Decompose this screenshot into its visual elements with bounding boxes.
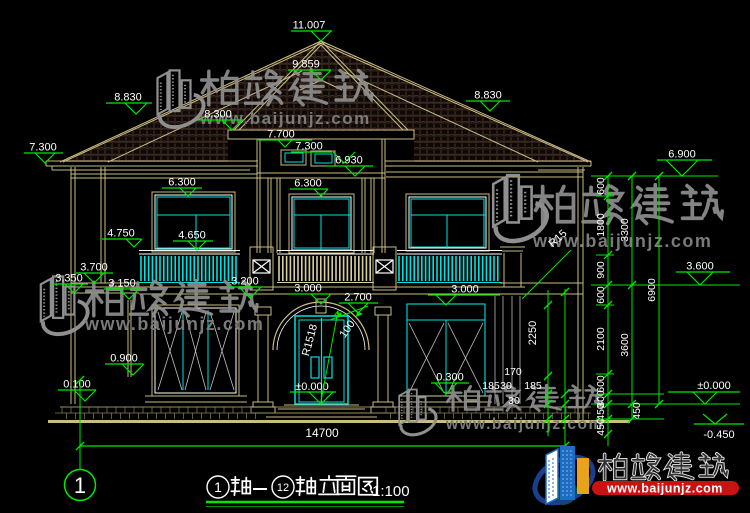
- svg-text:8.830: 8.830: [114, 92, 142, 104]
- svg-text:6.900: 6.900: [668, 149, 696, 161]
- svg-text:600: 600: [595, 177, 607, 195]
- svg-text:185: 185: [524, 380, 542, 392]
- svg-text:www.baijunjz.com: www.baijunjz.com: [84, 314, 264, 334]
- svg-text:1:100: 1:100: [372, 483, 410, 500]
- svg-text:3300: 3300: [619, 218, 631, 242]
- svg-text:14700: 14700: [305, 426, 339, 440]
- svg-text:7.300: 7.300: [29, 142, 57, 154]
- svg-text:0.900: 0.900: [110, 353, 138, 365]
- svg-text:3.200: 3.200: [231, 276, 259, 288]
- svg-text:3.600: 3.600: [686, 261, 714, 273]
- svg-text:3.150: 3.150: [108, 278, 136, 290]
- svg-text:www.baijunjz.com: www.baijunjz.com: [606, 482, 723, 496]
- svg-text:450: 450: [595, 418, 607, 436]
- svg-text:3.700: 3.700: [80, 262, 108, 274]
- svg-text:www.baijunjz.com: www.baijunjz.com: [445, 416, 604, 433]
- svg-text:11.007: 11.007: [293, 20, 326, 32]
- svg-text:8.300: 8.300: [204, 109, 232, 121]
- svg-text:900: 900: [595, 261, 607, 279]
- svg-text:1: 1: [74, 473, 86, 498]
- svg-text:30: 30: [508, 395, 520, 407]
- svg-text:3.350: 3.350: [55, 273, 83, 285]
- svg-text:185: 185: [482, 380, 500, 392]
- svg-text:170: 170: [504, 366, 522, 378]
- svg-text:9.859: 9.859: [292, 59, 320, 71]
- svg-text:1: 1: [214, 479, 222, 495]
- svg-text:12: 12: [277, 482, 289, 494]
- svg-text:600: 600: [595, 286, 607, 304]
- svg-text:6.300: 6.300: [168, 177, 196, 189]
- svg-text:8.830: 8.830: [474, 90, 502, 102]
- svg-text:7.700: 7.700: [267, 129, 295, 141]
- svg-text:2.700: 2.700: [344, 292, 372, 304]
- svg-text:6.930: 6.930: [335, 155, 363, 167]
- svg-text:2100: 2100: [595, 327, 607, 351]
- svg-text:2250: 2250: [527, 321, 539, 345]
- svg-text:±0.000: ±0.000: [697, 380, 731, 392]
- svg-text:0.100: 0.100: [63, 379, 91, 391]
- svg-text:450: 450: [595, 403, 607, 421]
- svg-text:6900: 6900: [646, 278, 658, 302]
- svg-text:3600: 3600: [619, 333, 631, 357]
- svg-text:4.650: 4.650: [178, 230, 206, 242]
- svg-text:30: 30: [500, 380, 512, 392]
- svg-text:0.300: 0.300: [436, 372, 464, 384]
- svg-text:4.750: 4.750: [107, 228, 135, 240]
- svg-text:600: 600: [595, 375, 607, 393]
- svg-text:-0.450: -0.450: [703, 429, 734, 441]
- svg-text:450: 450: [631, 402, 643, 420]
- svg-text:1800: 1800: [595, 213, 607, 237]
- svg-text:6.300: 6.300: [294, 178, 322, 190]
- svg-text:3.000: 3.000: [294, 283, 322, 295]
- svg-text:7.300: 7.300: [295, 141, 323, 153]
- svg-text:3.000: 3.000: [451, 284, 479, 296]
